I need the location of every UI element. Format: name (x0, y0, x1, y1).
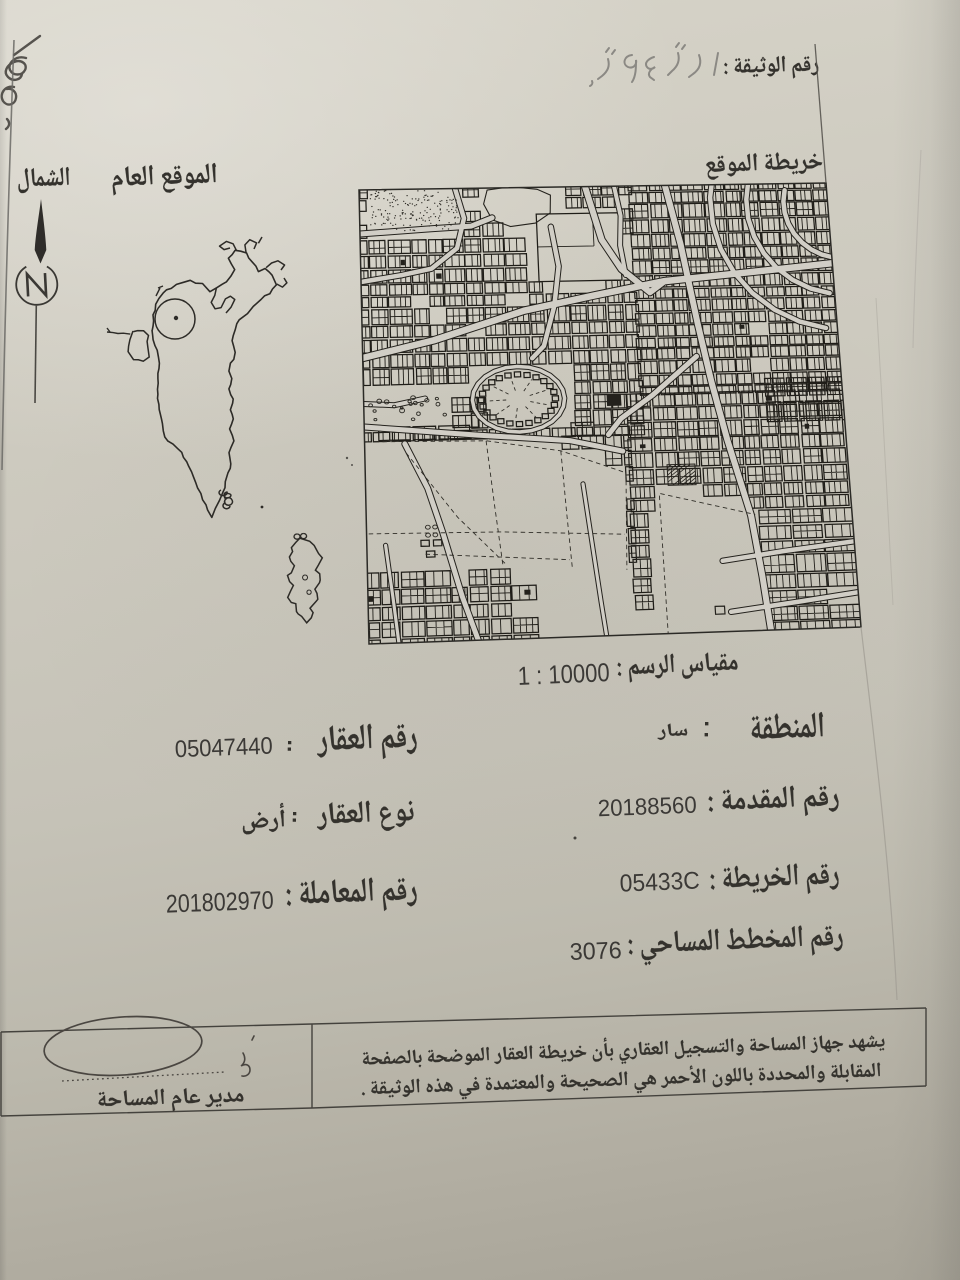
svg-text:05433C: 05433C (619, 868, 700, 898)
svg-text:1 : 10000: 1 : 10000 (517, 657, 610, 691)
svg-text:20188560: 20188560 (597, 792, 697, 822)
svg-text:05047440: 05047440 (174, 733, 273, 764)
svg-text:3076: 3076 (569, 937, 622, 966)
svg-text:201802970: 201802970 (165, 887, 274, 919)
